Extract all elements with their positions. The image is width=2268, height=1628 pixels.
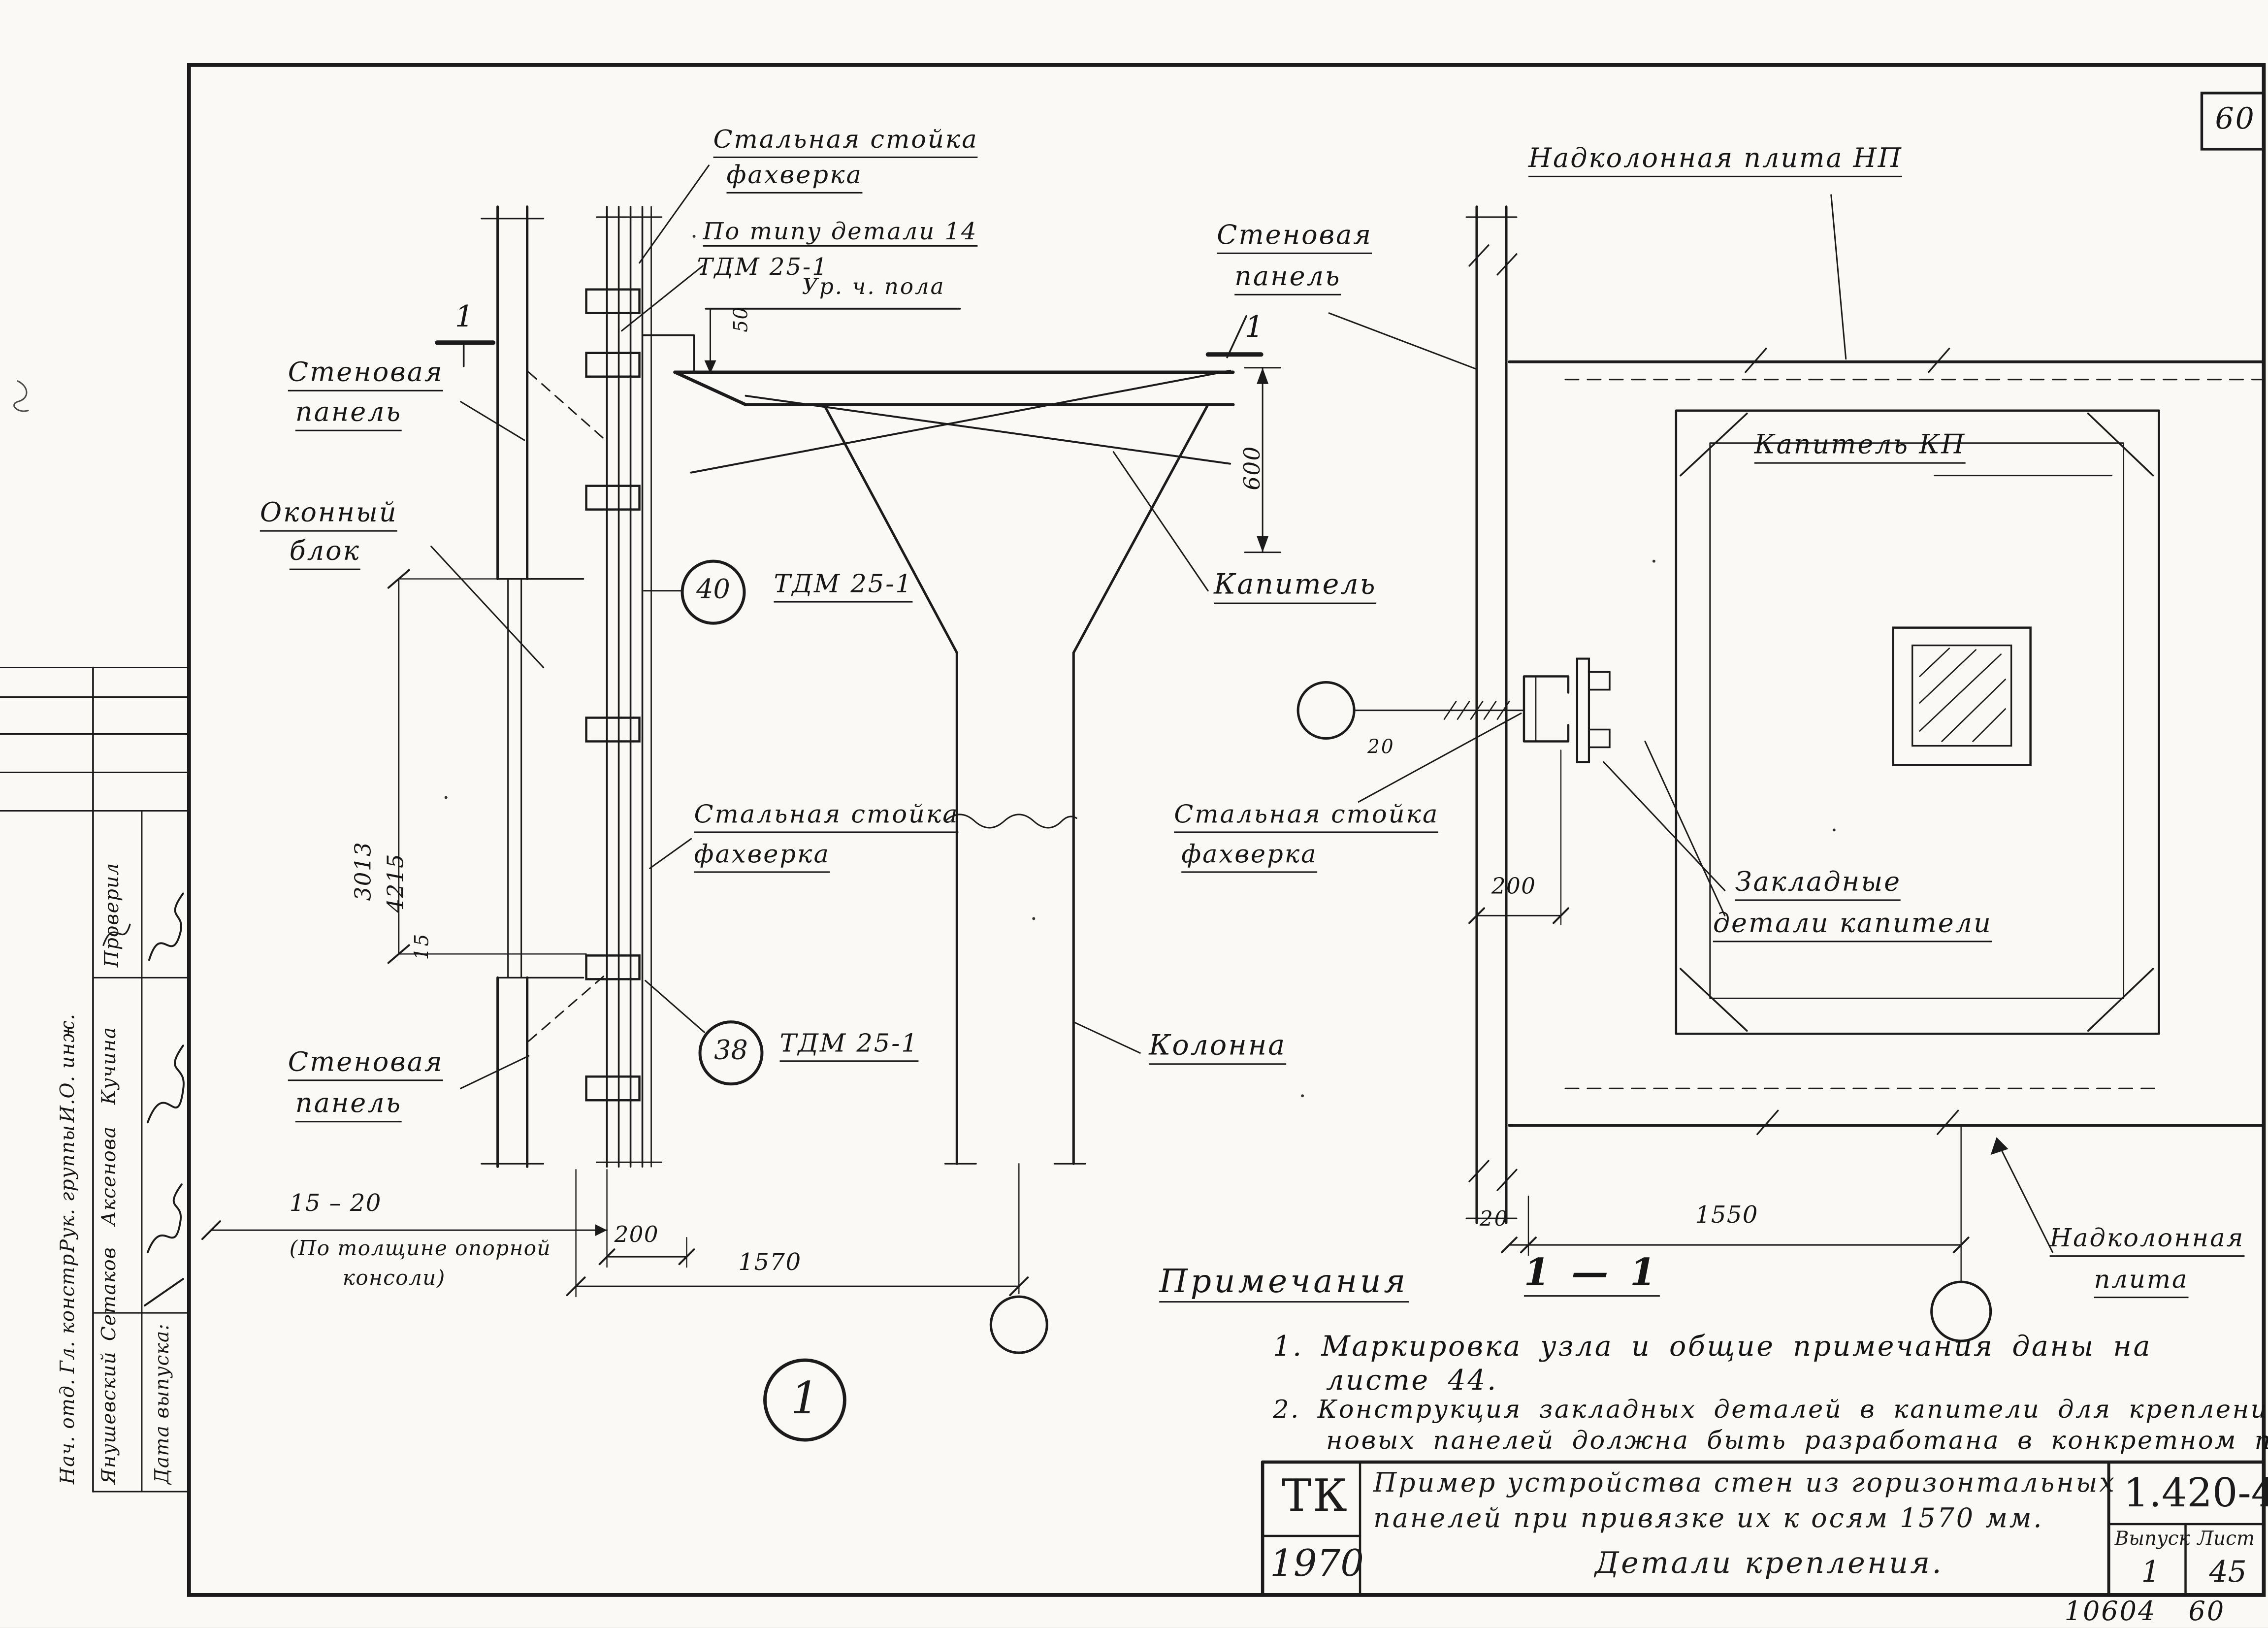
note-1-line1: 1. Маркировка узла и общие примечания да… bbox=[1273, 1331, 2152, 1363]
title-block-code: 1.420-4 bbox=[2124, 1471, 2268, 1517]
signature-role-3: И.О. инж. bbox=[59, 1013, 81, 1122]
signature-role-1: Гл. констр. bbox=[59, 1247, 81, 1373]
dim-200-right: 200 bbox=[1491, 874, 1536, 900]
dim-15-20-note-line1: (По толщине опорной bbox=[290, 1237, 551, 1261]
signature-checked-label: Проверил bbox=[103, 863, 126, 968]
signature-date-label: Дата выпуска: bbox=[154, 1323, 176, 1484]
label-wall-panel-right-line2: панель bbox=[1234, 263, 1341, 295]
dim-20-bottom: 20 bbox=[1480, 1208, 1509, 1232]
label-wall-panel-top-line1: Стеновая bbox=[288, 359, 444, 391]
label-plate-bottom-line1: Надколонная bbox=[2050, 1226, 2245, 1256]
section-mark-1-right: 1 bbox=[1245, 310, 1265, 344]
node-number-1: 1 bbox=[782, 1373, 827, 1425]
sheet-corner-number: 60 bbox=[2215, 102, 2256, 136]
footer-sheet-number: 60 bbox=[2189, 1598, 2226, 1628]
dim-600: 600 bbox=[1240, 446, 1266, 490]
label-steel-post-mid-line1: Стальная стойка bbox=[694, 802, 959, 832]
label-wall-panel-bottom-line1: Стеновая bbox=[288, 1048, 444, 1080]
title-block-line1: Пример устройства стен из горизонтальных bbox=[1373, 1468, 2116, 1499]
signature-name-2: Аксенова bbox=[100, 1126, 123, 1226]
title-block-year: 1970 bbox=[1270, 1542, 1364, 1585]
label-tdm-25-1-lower: ТДМ 25-1 bbox=[779, 1031, 918, 1061]
dim-15-20-note-line2: консоли) bbox=[343, 1267, 446, 1291]
label-wall-panel-top-line2: панель bbox=[295, 399, 402, 431]
dim-15-20: 15 – 20 bbox=[290, 1190, 382, 1217]
label-embedded-line2: детали капители bbox=[1713, 910, 1992, 942]
dim-20-detail: 20 bbox=[1367, 739, 1395, 761]
label-floor-level: Ур. ч. пола bbox=[802, 275, 945, 300]
label-steel-post-top-line1: Стальная стойка bbox=[713, 127, 978, 158]
label-steel-post-top-line2: фахверка bbox=[727, 163, 863, 193]
footer-code: 10604 bbox=[2065, 1598, 2157, 1628]
note-1-line2: листе 44. bbox=[1326, 1365, 1498, 1397]
signature-name-3: Кучина bbox=[100, 1027, 123, 1105]
label-window-block-line2: блок bbox=[290, 538, 360, 570]
label-embedded-line1: Закладные bbox=[1735, 868, 1901, 900]
drawing-linework bbox=[0, 0, 2268, 1628]
label-capital: Капитель bbox=[1214, 570, 1377, 604]
label-steel-post-mid-line2: фахверка bbox=[694, 842, 830, 872]
balloon-40: 40 bbox=[691, 575, 736, 606]
signature-role-2: Рук. группы bbox=[59, 1125, 81, 1252]
label-plate-bottom-line2: плита bbox=[2094, 1267, 2189, 1298]
drawing-sheet: 60 10604 60 Стальная стойка фахверка По … bbox=[0, 0, 2268, 1628]
label-tdm-25-1-upper: ТДМ 25-1 bbox=[774, 572, 912, 602]
dim-15: 15 bbox=[414, 933, 436, 960]
title-block-sheet-value: 45 bbox=[2209, 1554, 2247, 1589]
dim-4215: 4215 bbox=[384, 853, 410, 913]
title-block-line3: Детали крепления. bbox=[1595, 1545, 1944, 1580]
dim-1550: 1550 bbox=[1695, 1202, 1758, 1229]
label-plate-top: Надколонная плита НП bbox=[1528, 145, 1903, 177]
note-2-line2: новых панелей должна быть разработана в … bbox=[1326, 1427, 2268, 1456]
scanned-drawing-sheet: 60 10604 60 Стальная стойка фахверка По … bbox=[0, 0, 2268, 1628]
title-block-issue-label: Выпуск bbox=[2115, 1529, 2190, 1551]
title-block-org: ТК bbox=[1282, 1471, 1349, 1523]
label-detail-type-line1: По типу детали 14 bbox=[703, 219, 978, 247]
label-wall-panel-right-line1: Стеновая bbox=[1217, 222, 1372, 254]
label-capital-kp: Капитель КП bbox=[1754, 431, 1966, 463]
label-column: Колонна bbox=[1149, 1031, 1286, 1065]
section-title-1-1: 1 — 1 bbox=[1524, 1252, 1660, 1296]
dim-1570: 1570 bbox=[739, 1249, 802, 1276]
signature-name-1: Сетаков bbox=[100, 1247, 123, 1341]
label-window-block-line1: Оконный bbox=[260, 499, 398, 531]
dim-50: 50 bbox=[733, 306, 755, 332]
notes-header: Примечания bbox=[1159, 1264, 1408, 1303]
title-block-line2: панелей при привязке их к осям 1570 мм. bbox=[1373, 1503, 2043, 1534]
label-wall-panel-bottom-line2: панель bbox=[295, 1090, 402, 1122]
dim-3013: 3013 bbox=[352, 842, 377, 901]
signature-role-0: Нач. отд. bbox=[59, 1378, 81, 1484]
title-block-issue-value: 1 bbox=[2141, 1554, 2160, 1589]
label-steel-post-right-line1: Стальная стойка bbox=[1174, 802, 1439, 832]
note-2-line1: 2. Конструкция закладных деталей в капит… bbox=[1273, 1396, 2268, 1425]
label-steel-post-right-line2: фахверка bbox=[1181, 842, 1317, 872]
section-mark-1-left: 1 bbox=[455, 300, 475, 334]
balloon-38: 38 bbox=[709, 1035, 753, 1066]
title-block-sheet-label: Лист bbox=[2198, 1529, 2255, 1551]
signature-name-0: Янушевский bbox=[100, 1351, 123, 1484]
dim-200-left: 200 bbox=[615, 1223, 659, 1248]
